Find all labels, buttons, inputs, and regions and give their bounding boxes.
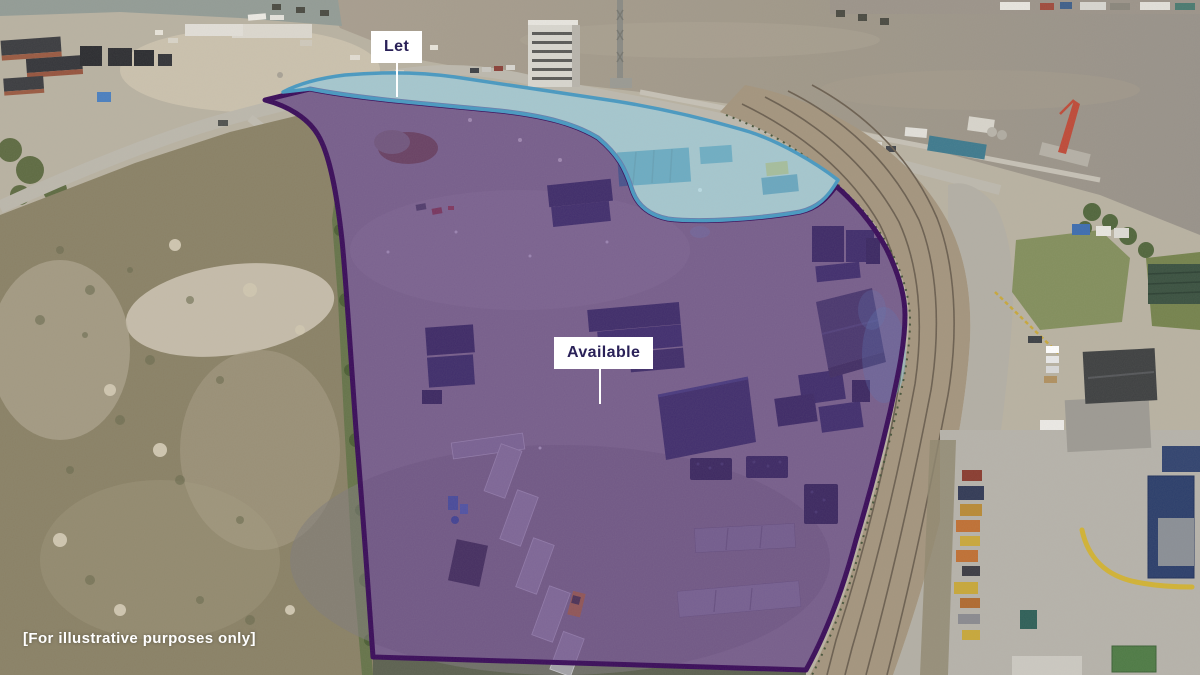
available-label-text: Available [567, 344, 640, 361]
available-leader-line [599, 366, 601, 404]
let-label: Let [371, 31, 422, 63]
let-label-text: Let [384, 38, 409, 55]
disclaimer-text: [For illustrative purposes only] [23, 630, 256, 647]
let-leader-line [396, 62, 398, 97]
available-label: Available [554, 337, 653, 369]
aerial-photo: Let Available [For illustrative purposes… [0, 0, 1200, 675]
